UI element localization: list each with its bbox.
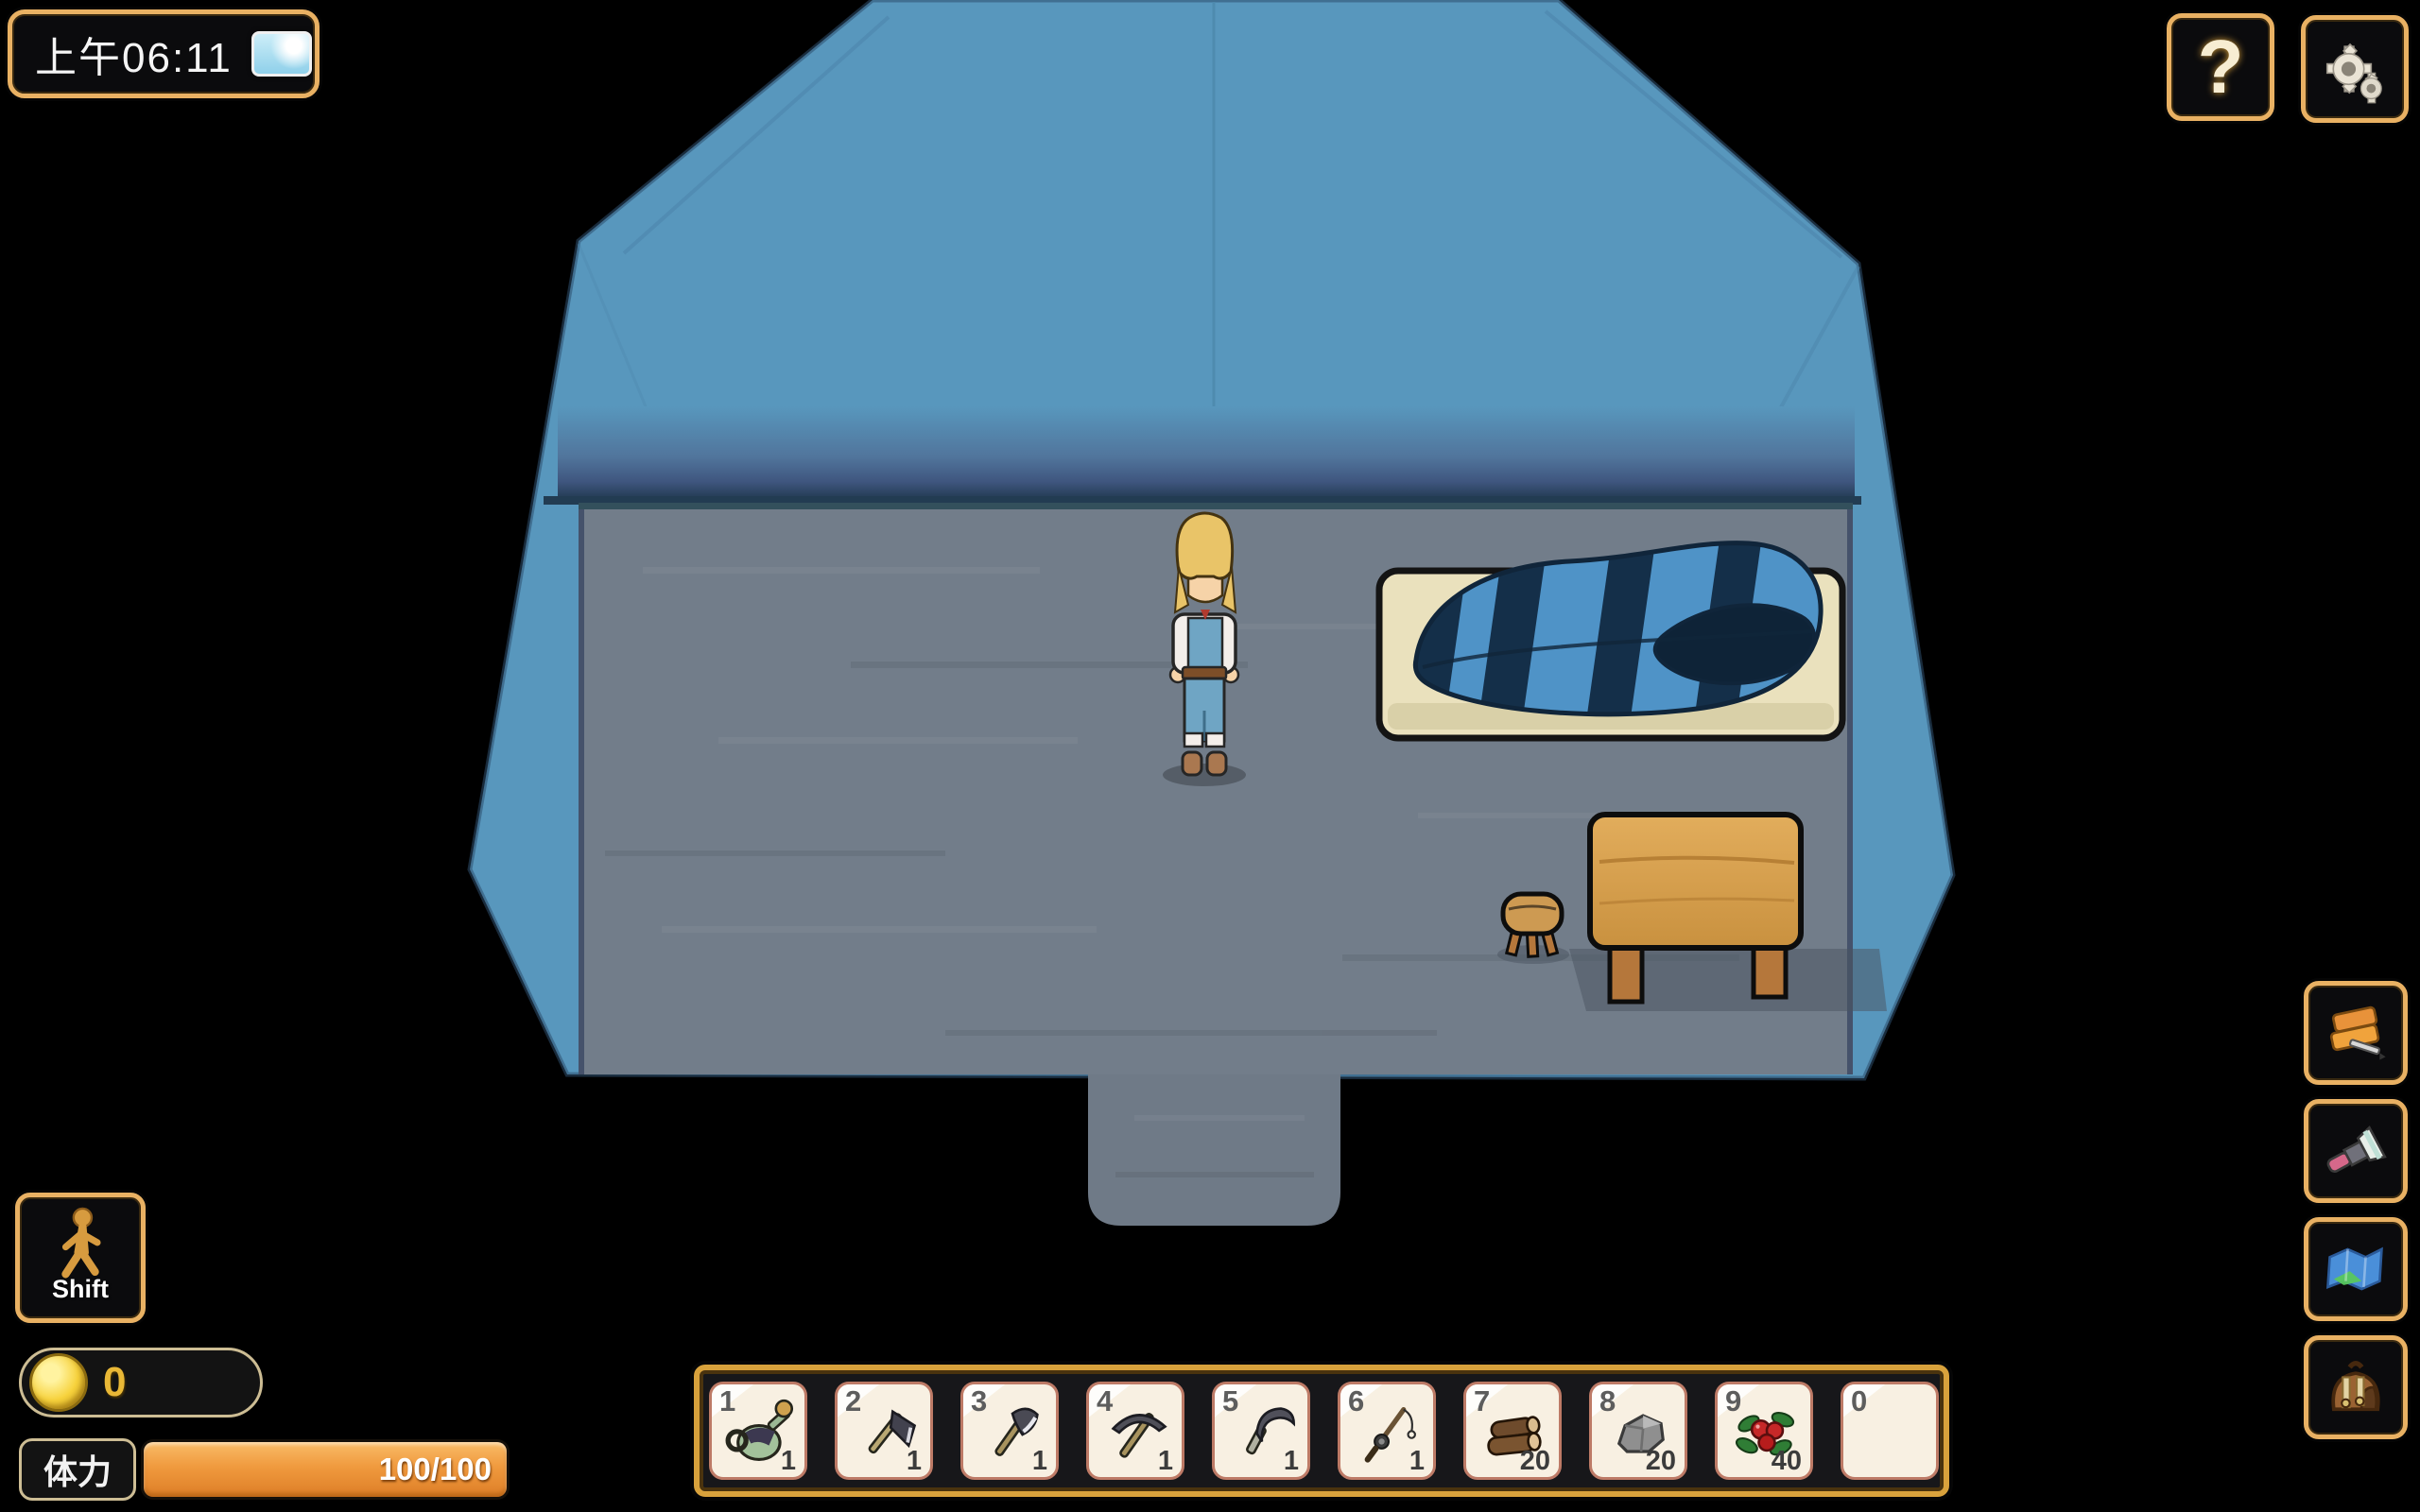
settings-button[interactable] <box>2301 15 2409 123</box>
walking-person-icon <box>40 1203 121 1284</box>
question-mark-icon: ? <box>2198 29 2244 105</box>
slot-number: 7 <box>1474 1384 1490 1418</box>
game-screen: 上午06:11 ? <box>0 0 2420 1512</box>
time-text: 上午06:11 <box>35 24 233 84</box>
slot-number: 1 <box>719 1384 735 1418</box>
map-button[interactable] <box>2304 1217 2408 1321</box>
hotbar-slot-7[interactable]: 7 20 <box>1463 1382 1562 1480</box>
slot-count: 20 <box>1646 1446 1676 1477</box>
slot-count: 1 <box>1158 1446 1173 1477</box>
backpack-icon <box>2320 1351 2392 1423</box>
scene <box>0 0 2420 1512</box>
hotbar-slot-8[interactable]: 8 20 <box>1589 1382 1687 1480</box>
backpack-button[interactable] <box>2304 1335 2408 1439</box>
shift-walk-button[interactable]: Shift <box>15 1193 146 1323</box>
hotbar-slot-4[interactable]: 4 1 <box>1086 1382 1184 1480</box>
slot-count: 1 <box>907 1446 922 1477</box>
help-button[interactable]: ? <box>2167 13 2274 121</box>
stamina-label: 体力 <box>19 1438 136 1501</box>
time-display: 上午06:11 <box>8 9 320 98</box>
slot-count: 20 <box>1520 1446 1550 1477</box>
slot-count: 1 <box>1409 1446 1425 1477</box>
slot-count: 40 <box>1772 1446 1802 1477</box>
journal-button[interactable] <box>2304 981 2408 1085</box>
slot-count: 1 <box>1032 1446 1047 1477</box>
slot-number: 9 <box>1725 1384 1741 1418</box>
stamina-bar: 100/100 <box>144 1442 507 1497</box>
coin-icon <box>29 1353 88 1412</box>
slot-number: 5 <box>1222 1384 1238 1418</box>
stool[interactable] <box>1497 894 1569 964</box>
tent-entrance <box>1088 1074 1340 1226</box>
slot-number: 8 <box>1599 1384 1616 1418</box>
map-icon <box>2320 1233 2392 1305</box>
hotbar-slot-2[interactable]: 2 1 <box>835 1382 933 1480</box>
hotbar-slot-0[interactable]: 0 <box>1841 1382 1939 1480</box>
hotbar-slot-6[interactable]: 6 1 <box>1338 1382 1436 1480</box>
hotbar-slot-9[interactable]: 9 40 <box>1715 1382 1813 1480</box>
flashlight-button[interactable] <box>2304 1099 2408 1203</box>
gear-icon <box>2318 32 2392 106</box>
slot-count: 1 <box>1284 1446 1299 1477</box>
coin-counter: 0 <box>19 1348 263 1417</box>
stamina-value: 100/100 <box>379 1452 492 1487</box>
flashlight-icon <box>2320 1115 2392 1187</box>
slot-number: 2 <box>845 1384 861 1418</box>
journal-icon <box>2320 997 2392 1069</box>
hotbar-slot-3[interactable]: 3 1 <box>960 1382 1059 1480</box>
coin-value: 0 <box>103 1359 126 1406</box>
hotbar: 1 1 2 1 3 1 4 <box>694 1365 1949 1497</box>
slot-number: 6 <box>1348 1384 1364 1418</box>
hotbar-slot-5[interactable]: 5 1 <box>1212 1382 1310 1480</box>
slot-number: 4 <box>1097 1384 1113 1418</box>
slot-number: 3 <box>971 1384 987 1418</box>
shift-label: Shift <box>52 1275 109 1304</box>
hotbar-slot-1[interactable]: 1 1 <box>709 1382 807 1480</box>
slot-number: 0 <box>1851 1384 1867 1418</box>
clear-sky-icon <box>251 31 312 77</box>
slot-count: 1 <box>781 1446 796 1477</box>
